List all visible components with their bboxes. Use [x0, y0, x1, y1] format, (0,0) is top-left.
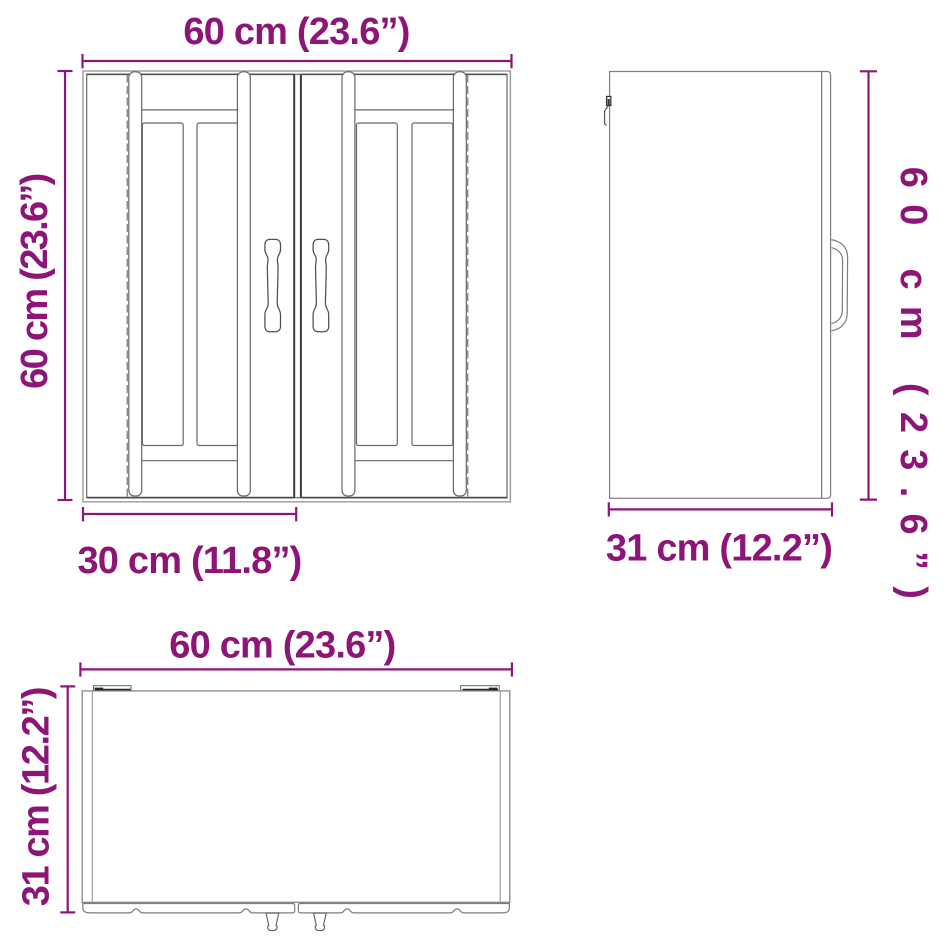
svg-text:60 cm (23.6”): 60 cm (23.6”)	[892, 167, 934, 615]
svg-text:31 cm (12.2”): 31 cm (12.2”)	[16, 688, 58, 906]
svg-text:60 cm (23.6”): 60 cm (23.6”)	[183, 11, 409, 53]
svg-text:31 cm (12.2”): 31 cm (12.2”)	[606, 528, 832, 570]
svg-text:60 cm (23.6”): 60 cm (23.6”)	[14, 174, 56, 389]
svg-text:60 cm (23.6”): 60 cm (23.6”)	[169, 624, 395, 666]
svg-text:30 cm (11.8”): 30 cm (11.8”)	[77, 540, 301, 582]
